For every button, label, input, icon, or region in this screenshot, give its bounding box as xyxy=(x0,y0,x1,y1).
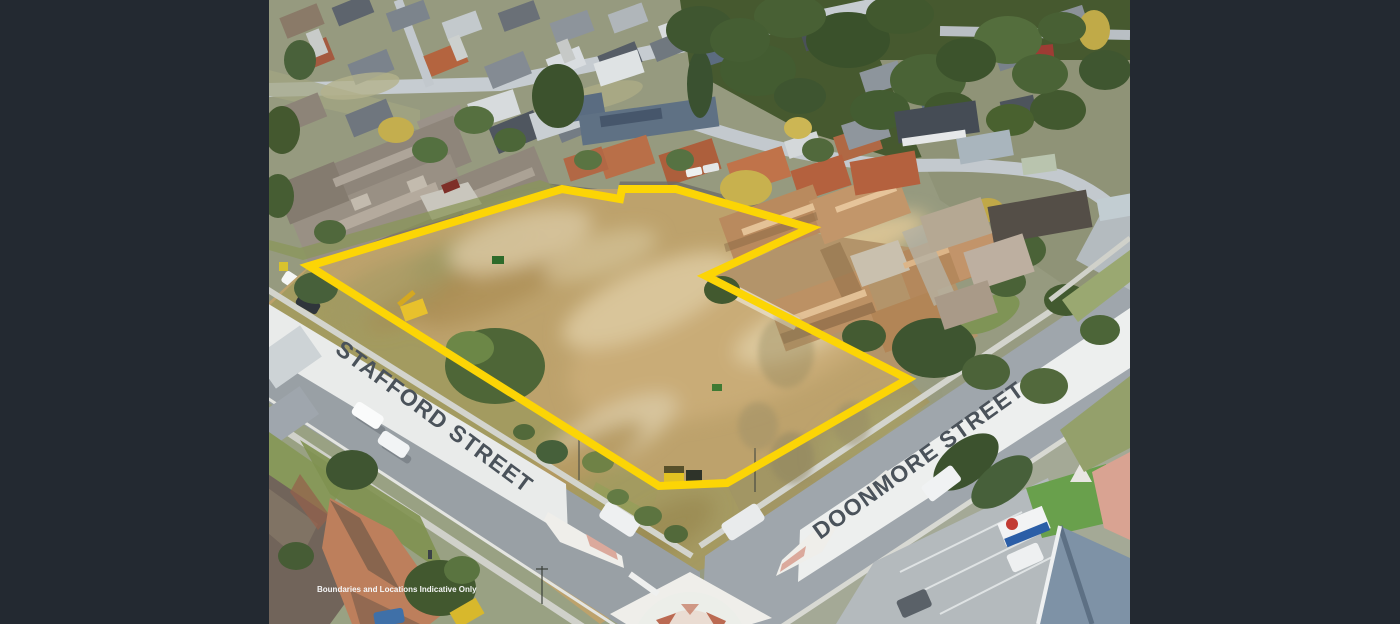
svg-text:Boundaries and Locations Indic: Boundaries and Locations Indicative Only xyxy=(317,585,477,594)
